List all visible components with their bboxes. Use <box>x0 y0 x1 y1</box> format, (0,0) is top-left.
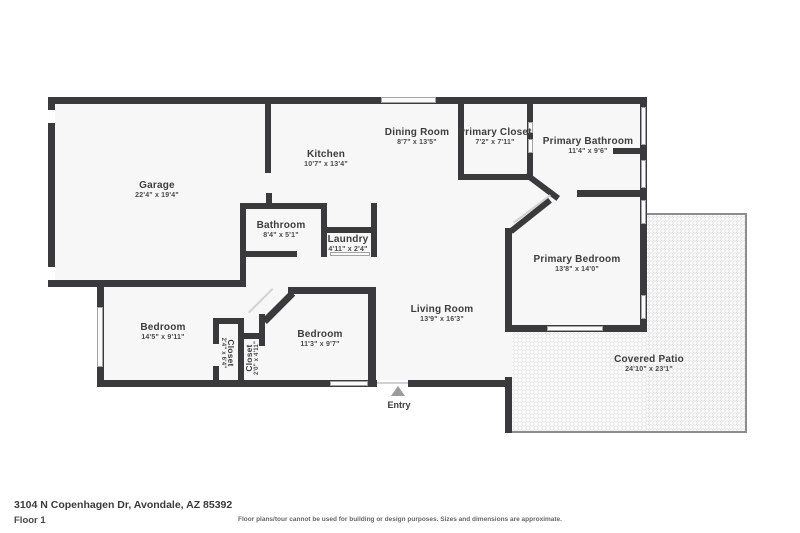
room-dimensions: 8'4" x 5'1" <box>257 232 306 239</box>
wall <box>371 203 377 257</box>
room-dimensions: 14'5" x 9'11" <box>140 334 185 341</box>
wall <box>288 287 374 294</box>
room-label-garage: Garage 22'4" x 19'4" <box>135 180 179 199</box>
wall-gap <box>48 110 55 123</box>
patio-surface <box>512 332 647 431</box>
wall <box>48 280 245 287</box>
entry-threshold-line <box>377 382 408 384</box>
room-label-closet-left: Closet 2'4" x 6'4" <box>220 338 236 369</box>
room-name: Closet <box>226 338 236 369</box>
room-label-covered-patio: Covered Patio 24'10" x 23'1" <box>614 354 684 373</box>
wall <box>48 97 55 287</box>
room-label-kitchen: Kitchen 10'7" x 13'4" <box>304 149 348 168</box>
wall <box>266 193 272 203</box>
room-name: Primary Closet <box>458 127 531 138</box>
entry-label: Entry <box>387 400 410 410</box>
room-dimensions: 11'3" x 9'7" <box>297 341 342 348</box>
room-label-bathroom: Bathroom 8'4" x 5'1" <box>257 220 306 239</box>
window <box>547 326 603 331</box>
room-dimensions: 4'11" x 2'4" <box>328 246 369 253</box>
wall <box>265 97 271 173</box>
wall <box>321 227 377 233</box>
room-dimensions: 13'9" x 16'3" <box>411 316 474 323</box>
wall <box>408 380 512 387</box>
wall <box>240 251 297 257</box>
wall <box>48 97 647 104</box>
room-name: Primary Bathroom <box>543 136 633 147</box>
patio-border <box>745 213 747 433</box>
room-label-primary-bathroom: Primary Bathroom 11'4" x 9'6" <box>543 136 633 155</box>
room-name: Bedroom <box>140 322 185 333</box>
wall <box>240 203 327 209</box>
wall <box>505 377 512 433</box>
room-name: Dining Room <box>385 127 449 138</box>
room-label-laundry: Laundry 4'11" x 2'4" <box>328 234 369 253</box>
room-label-bedroom-left: Bedroom 14'5" x 9'11" <box>140 322 185 341</box>
room-name: Bedroom <box>297 329 342 340</box>
room-name: Garage <box>135 180 179 191</box>
room-label-bedroom-right: Bedroom 11'3" x 9'7" <box>297 329 342 348</box>
room-dimensions: 11'4" x 9'6" <box>543 148 633 155</box>
window <box>641 295 646 319</box>
room-name: Covered Patio <box>614 354 684 365</box>
window <box>641 107 646 145</box>
wall <box>213 318 219 344</box>
room-name: Closet <box>244 341 254 375</box>
window <box>330 381 368 386</box>
window <box>641 200 646 224</box>
window <box>641 160 646 188</box>
floor-plan: Entry Garage 22'4" x 19'4" Kitchen 10'7"… <box>0 0 800 533</box>
window <box>381 97 436 103</box>
wall <box>368 287 376 387</box>
window <box>97 307 103 367</box>
room-label-primary-bedroom: Primary Bedroom 13'8" x 14'0" <box>534 254 621 273</box>
patio-border <box>645 213 747 215</box>
room-name: Primary Bedroom <box>534 254 621 265</box>
room-dimensions: 2'4" x 6'4" <box>220 338 226 369</box>
patio-border <box>512 431 747 433</box>
room-dimensions: 22'4" x 19'4" <box>135 192 179 199</box>
wall <box>240 203 246 287</box>
room-dimensions: 7'2" x 7'11" <box>458 139 531 146</box>
room-dimensions: 13'8" x 14'0" <box>534 266 621 273</box>
patio-surface <box>647 215 745 431</box>
room-name: Laundry <box>328 234 369 245</box>
room-label-closet-right: Closet 2'0" x 4'11" <box>244 341 260 375</box>
room-name: Bathroom <box>257 220 306 231</box>
wall <box>505 228 512 332</box>
room-label-primary-closet: Primary Closet 7'2" x 7'11" <box>458 127 531 146</box>
room-label-living-room: Living Room 13'9" x 16'3" <box>411 304 474 323</box>
disclaimer-text: Floor plans/tour cannot be used for buil… <box>0 516 800 523</box>
room-name: Living Room <box>411 304 474 315</box>
entry-arrow-icon <box>391 386 405 396</box>
room-dimensions: 2'0" x 4'11" <box>254 341 260 375</box>
room-label-dining-room: Dining Room 8'7" x 13'5" <box>385 127 449 146</box>
property-address: 3104 N Copenhagen Dr, Avondale, AZ 85392 <box>14 499 232 511</box>
room-dimensions: 24'10" x 23'1" <box>614 366 684 373</box>
room-dimensions: 8'7" x 13'5" <box>385 139 449 146</box>
wall-gap <box>48 267 55 280</box>
wall <box>577 190 647 197</box>
room-name: Kitchen <box>304 149 348 160</box>
wall <box>458 174 533 180</box>
room-dimensions: 10'7" x 13'4" <box>304 161 348 168</box>
door-opening <box>297 251 320 257</box>
